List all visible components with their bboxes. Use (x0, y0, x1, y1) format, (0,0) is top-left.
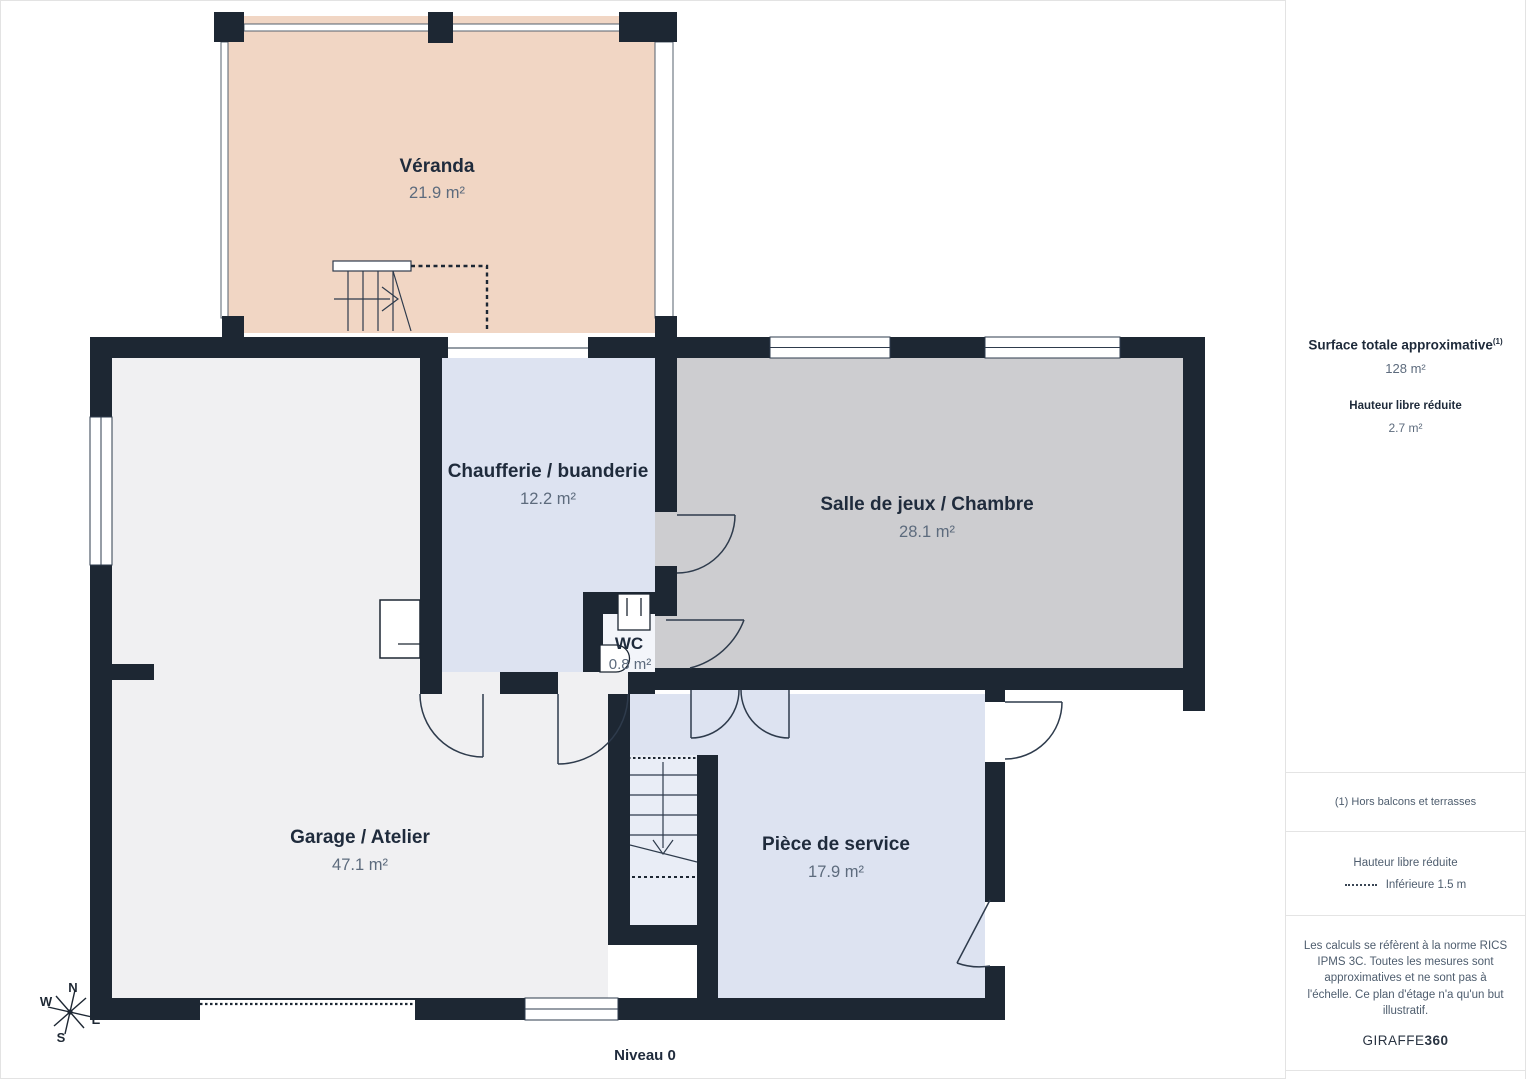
label-chaufferie-name: Chaufferie / buanderie (448, 461, 649, 482)
void-under-stairs (630, 945, 697, 998)
dotted-line-icon (1345, 884, 1377, 886)
garage-door-opening (200, 1000, 415, 1020)
window-left (90, 417, 112, 565)
label-wc-area: 0.8 m² (609, 656, 652, 673)
info-sidebar: Surface totale approximative(1) 128 m² H… (1285, 0, 1525, 1079)
window-bottom (525, 998, 618, 1020)
wall-garage-stub (112, 664, 154, 680)
window-top-a (770, 337, 890, 358)
brand-logo: GIRAFFE360 (1362, 1033, 1448, 1048)
label-piece-name: Pièce de service (762, 834, 910, 855)
label-salle-area: 28.1 m² (899, 523, 955, 541)
legend-title: Hauteur libre réduite (1353, 857, 1457, 869)
compass-north: N (68, 980, 77, 995)
wall-garage-chaufferie (420, 358, 442, 694)
electrical-panel (380, 600, 420, 658)
wall-right-upper (1183, 337, 1205, 711)
sidebar-summary: Surface totale approximative(1) 128 m² H… (1286, 0, 1525, 772)
window-top-b (985, 337, 1120, 358)
footnote-marker: (1) (1493, 337, 1503, 346)
sidebar-footnote: (1) Hors balcons et terrasses (1286, 772, 1525, 831)
wall-stair-bottom (608, 925, 718, 945)
label-veranda-name: Véranda (400, 156, 475, 177)
floor-plan: N W S E (0, 0, 1285, 1079)
door-gap-chaufferie-garage-1 (442, 672, 500, 694)
legend-item-label: Inférieure 1.5 m (1386, 879, 1467, 891)
door-gap-chaufferie-salle (655, 512, 677, 566)
piece-floor-left (630, 694, 718, 755)
label-wc-name: WC (615, 634, 643, 653)
wall-stair-left (608, 694, 630, 945)
wall-stair-right (697, 755, 718, 998)
door-gap-piece-exterior-bottom (985, 902, 1005, 966)
label-veranda-area: 21.9 m² (409, 184, 465, 202)
surface-total-title: Surface totale approximative(1) (1308, 337, 1502, 353)
toilet-icon (618, 594, 650, 630)
sidebar-legal: Les calculs se réfèrent à la norme RICS … (1286, 915, 1525, 1071)
label-garage-name: Garage / Atelier (290, 827, 430, 848)
door-piece-exterior-top (1005, 702, 1062, 759)
level-label: Niveau 0 (614, 1047, 676, 1064)
disclaimer-text: Les calculs se réfèrent à la norme RICS … (1302, 938, 1510, 1018)
door-gap-wc-salle (655, 616, 677, 668)
door-gap-piece-exterior-top (985, 702, 1005, 762)
label-garage-area: 47.1 m² (332, 856, 388, 874)
label-salle-name: Salle de jeux / Chambre (820, 494, 1033, 515)
wall-salle-bottom (655, 668, 1205, 690)
reduced-height-value: 2.7 m² (1388, 421, 1422, 435)
label-chaufferie-area: 12.2 m² (520, 490, 576, 508)
door-gap-chaufferie-garage-2 (558, 672, 628, 694)
sidebar-legend: Hauteur libre réduite Inférieure 1.5 m (1286, 831, 1525, 915)
compass-west: W (40, 994, 53, 1009)
reduced-height-title: Hauteur libre réduite (1349, 400, 1461, 412)
label-piece-area: 17.9 m² (808, 863, 864, 881)
surface-total-value: 128 m² (1385, 361, 1425, 376)
floorplan-page: N W S E (0, 0, 1526, 1079)
compass-south: S (57, 1030, 66, 1045)
